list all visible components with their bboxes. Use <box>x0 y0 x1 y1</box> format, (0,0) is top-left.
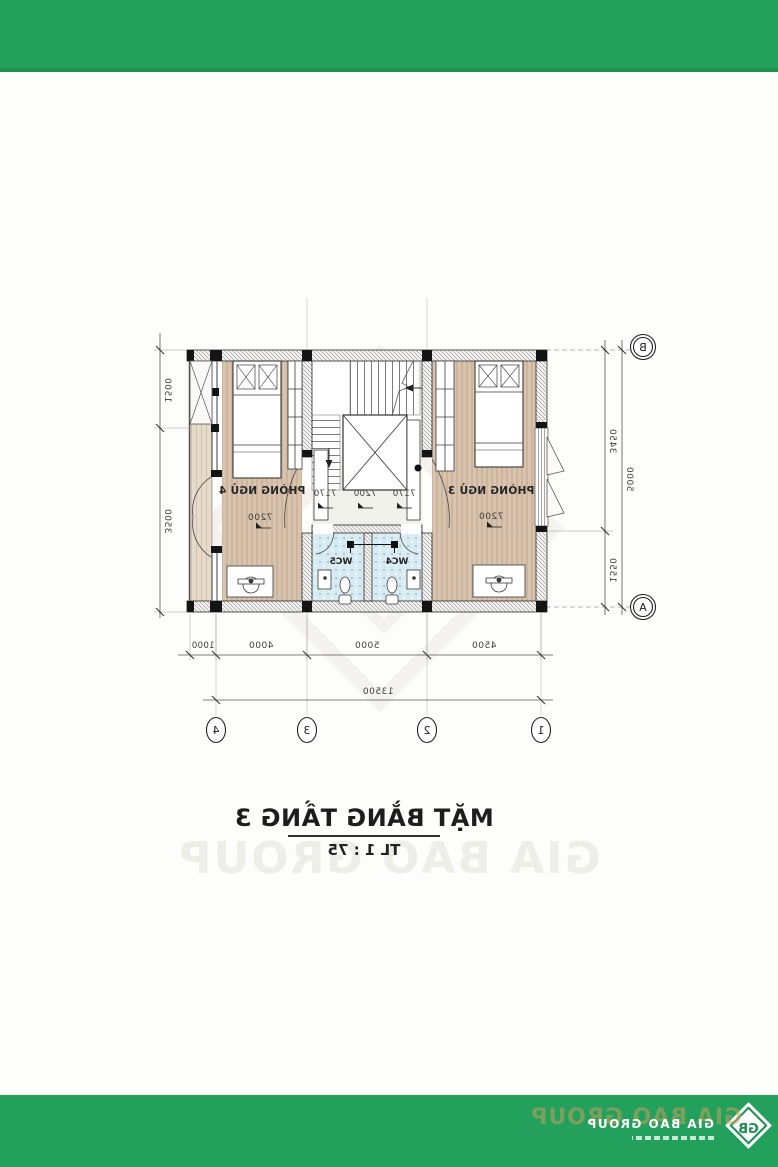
toilet-wc5 <box>340 577 350 593</box>
dim-5000-side: 5000 <box>624 467 634 492</box>
grid-col-4: 4 <box>213 724 220 737</box>
bedroom-3-level: 7200 <box>479 512 504 522</box>
grid-row-b: B <box>639 341 647 354</box>
wc5-floor <box>312 533 364 601</box>
wardrobe-bedroom-3 <box>436 361 454 471</box>
bed-bedroom-3 <box>475 361 523 467</box>
wc4-label: WC4 <box>386 557 409 567</box>
dim-4500: 4500 <box>472 641 497 651</box>
footer-tagline-placeholder <box>632 1136 714 1140</box>
grid-col-3: 3 <box>304 724 311 737</box>
dim-3500: 3500 <box>162 509 172 534</box>
desk-bedroom-4 <box>227 566 273 597</box>
wall-top <box>187 350 547 361</box>
grid-col-2: 2 <box>424 724 431 737</box>
drawing-title: MẶT BẰNG TẦNG 3 <box>229 804 499 832</box>
floor-plan-drawing: PHÒNG NGỦ 3 7200 PHÒNG NGỦ 4 7200 7170 7… <box>0 0 778 1167</box>
dim-4000: 4000 <box>249 641 274 651</box>
title-underline <box>288 835 440 837</box>
balcony-floor <box>190 424 212 601</box>
grid-col-1: 1 <box>538 724 545 737</box>
wardrobe-bedroom-4 <box>288 361 302 469</box>
dim-total-13500: 13500 <box>362 687 393 697</box>
dim-1500: 1500 <box>162 378 172 403</box>
hall-level-1: 7170 <box>392 489 415 499</box>
bedroom-4-label: PHÒNG NGỦ 4 <box>219 483 306 497</box>
stair-newel-dot <box>415 465 422 472</box>
hall-level-2: 7200 <box>353 489 376 499</box>
footer-brand-text: GIA BAO GROUP <box>586 1117 714 1131</box>
mirrored-drawing-page: GIA BAO GROUP <box>0 0 778 1167</box>
dim-1550: 1550 <box>607 558 617 583</box>
balcony-void <box>190 361 212 424</box>
desk-bedroom-3 <box>473 565 525 597</box>
toilet-wc4 <box>387 577 397 593</box>
hall-level-3: 7170 <box>313 489 336 499</box>
grid-row-a: A <box>639 601 647 614</box>
drawing-scale: TL 1 : 75 <box>229 841 499 859</box>
dim-5000: 5000 <box>355 641 380 651</box>
bedroom-3-label: PHÒNG NGỦ 3 <box>448 483 535 497</box>
bed-bedroom-4 <box>233 361 281 478</box>
bedroom-4-level: 7200 <box>248 513 273 523</box>
window-swings <box>547 437 564 517</box>
title-block: MẶT BẰNG TẦNG 3 TL 1 : 75 <box>229 804 499 859</box>
dim-1000: 1000 <box>191 641 214 651</box>
wc5-label: WC5 <box>330 557 353 567</box>
dim-3450: 3450 <box>607 429 617 454</box>
wall-wc-divider <box>364 533 372 601</box>
wall-bottom <box>187 601 547 612</box>
